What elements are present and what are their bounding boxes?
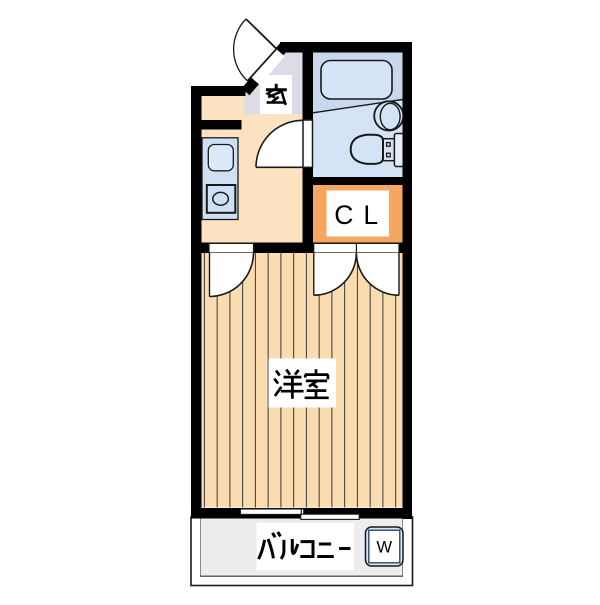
svg-text:C: C	[334, 200, 353, 230]
svg-text:W: W	[377, 539, 393, 557]
svg-text:L: L	[363, 200, 378, 230]
